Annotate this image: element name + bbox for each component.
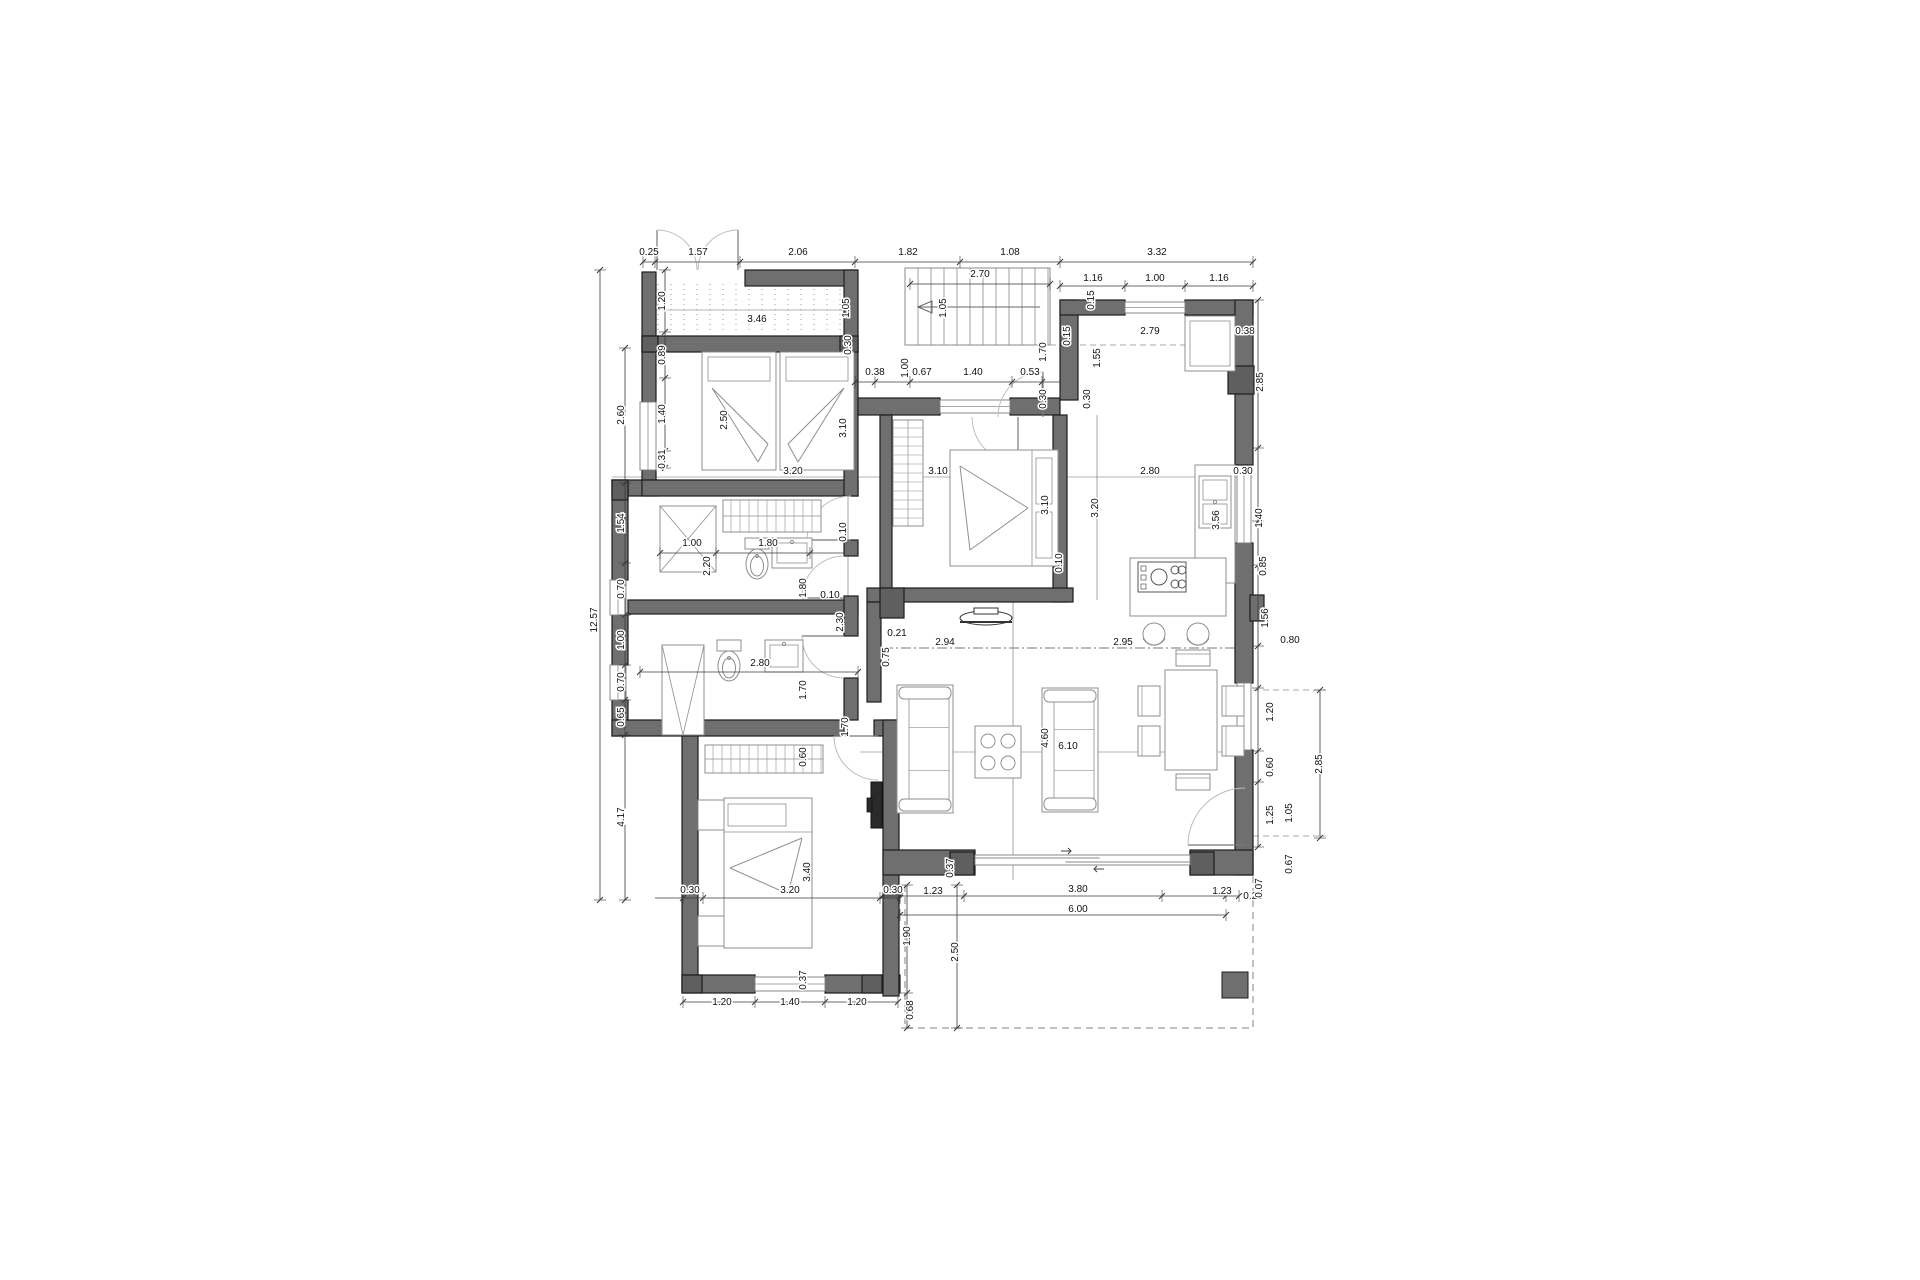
dimension-label: 0.15	[1062, 326, 1073, 346]
dimension-label: 3.20	[1090, 498, 1101, 518]
wall-post	[880, 588, 904, 618]
dimension-label: 1.08	[1000, 247, 1020, 258]
dimension-label: 0.37	[945, 858, 956, 878]
chair	[1176, 774, 1210, 790]
dimension-label: 2.50	[950, 942, 961, 962]
dimension-label: 3.20	[780, 885, 800, 896]
boiler	[1185, 316, 1235, 371]
dimension-label: 0.30	[843, 335, 854, 355]
dimension-label: 6.00	[1068, 904, 1088, 915]
toilet	[746, 549, 768, 579]
chair	[1222, 726, 1244, 756]
sofa	[897, 685, 953, 813]
dimension-label: 0.07	[1254, 878, 1265, 898]
dimension-label: 2.94	[935, 637, 955, 648]
dimension-label: 4.17	[616, 807, 627, 827]
dimension-label: 0.31	[657, 449, 668, 469]
tv-mount	[867, 798, 872, 812]
dimension-label: 0.21	[887, 628, 907, 639]
wall	[1010, 398, 1060, 415]
nightstand	[698, 800, 724, 830]
dimension-label: 1.80	[798, 578, 809, 598]
dimension-label: 0.30	[1082, 389, 1093, 409]
dimension-label: 0.70	[616, 672, 627, 692]
wall	[867, 602, 881, 702]
dimension-label: 3.10	[928, 466, 948, 477]
nightstand	[698, 916, 724, 946]
dimension-label: 1.40	[1254, 508, 1265, 528]
dimension-label: 1.82	[898, 247, 918, 258]
wall-post	[1190, 852, 1214, 875]
shower	[662, 645, 704, 735]
dimension-label: 1.70	[1038, 342, 1049, 362]
stool	[1187, 623, 1209, 645]
dimension-label: 1.00	[900, 358, 911, 378]
dimension-label: 1.40	[963, 367, 983, 378]
dimension-label: 0.10	[820, 590, 840, 601]
wall	[745, 270, 857, 286]
toilet-tank	[717, 640, 741, 651]
wall-post	[682, 975, 702, 993]
dimension-label: 0.75	[881, 647, 892, 667]
chair	[1176, 650, 1210, 666]
dimension-label: 2.85	[1255, 372, 1266, 392]
toilet	[718, 651, 740, 681]
wall	[642, 352, 656, 402]
wall	[642, 480, 858, 496]
wall	[682, 736, 698, 992]
dimension-label: 1.20	[847, 997, 867, 1008]
dimension-label: 1.05	[841, 298, 852, 318]
dimension-label: 3.32	[1147, 247, 1167, 258]
dimension-label: 1.00	[1145, 273, 1165, 284]
dimension-label: 0.30	[1038, 389, 1049, 409]
dimension-label: 1.05	[938, 298, 949, 318]
cooktop	[1138, 562, 1186, 592]
dimension-label: 0.30	[883, 885, 903, 896]
chair	[1138, 686, 1160, 716]
coffee-table	[975, 726, 1021, 778]
dimension-label: 0.65	[616, 707, 627, 727]
dimension-label: 2.30	[835, 612, 846, 632]
dimension-label: 1.54	[616, 513, 627, 533]
tv	[871, 782, 882, 828]
dimension-label: 0.38	[865, 367, 885, 378]
dimension-label: 0.85	[1258, 556, 1269, 576]
dimension-label: 0.60	[798, 747, 809, 767]
dimension-label: 1.55	[1092, 348, 1103, 368]
wall	[628, 600, 858, 614]
dimension-label: 3.56	[1211, 510, 1222, 530]
dimension-label: 2.60	[616, 405, 627, 425]
dimension-label: 1.05	[1284, 803, 1295, 823]
sofa-arm	[899, 687, 951, 699]
dimension-label: 3.46	[747, 314, 767, 325]
dimension-label: 1.90	[902, 926, 913, 946]
dimension-label: 6.10	[1058, 741, 1078, 752]
dimension-label: 2.80	[1140, 466, 1160, 477]
wall	[642, 336, 858, 352]
dimension-label: 0.70	[616, 579, 627, 599]
dimension-label: 1.20	[657, 291, 668, 311]
dimension-label: 1.16	[1209, 273, 1229, 284]
dimension-label: 1.20	[712, 997, 732, 1008]
dimension-label: 1.40	[780, 997, 800, 1008]
wall	[844, 596, 858, 636]
dimension-label: 1.20	[1265, 702, 1276, 722]
dimension-label: 1.16	[1083, 273, 1103, 284]
dimension-label: 1.40	[657, 404, 668, 424]
wall-post	[862, 975, 882, 993]
canvas	[0, 0, 1920, 1280]
dimension-label: 2.70	[970, 269, 990, 280]
dimension-label: 1.70	[798, 680, 809, 700]
tv-screen	[974, 608, 998, 614]
dimension-label: 2.95	[1113, 637, 1133, 648]
dimension-label: 2.85	[1314, 754, 1325, 774]
dimension-label: 3.10	[838, 418, 849, 438]
dimension-label: 0.53	[1020, 367, 1040, 378]
double-bed	[724, 798, 812, 948]
dimension-label: 0.30	[1233, 466, 1253, 477]
dimension-label: 1.25	[1265, 805, 1276, 825]
wall	[844, 678, 858, 720]
dimension-label: 3.40	[802, 862, 813, 882]
sofa-arm	[899, 799, 951, 811]
sofa-arm	[1044, 690, 1096, 702]
dimension-label: 0.10	[838, 522, 849, 542]
dimension-label: 0.25	[639, 247, 659, 258]
dimension-label: 4.60	[1040, 728, 1051, 748]
dimension-label: 1.23	[923, 886, 943, 897]
dimension-label: 0.15	[1086, 290, 1097, 310]
dimension-label: 3.80	[1068, 884, 1088, 895]
sofa-arm	[1044, 798, 1096, 810]
stool	[1143, 623, 1165, 645]
dimension-label: 12.57	[589, 607, 600, 632]
dimension-label: 0.80	[1280, 635, 1300, 646]
dimension-label: 3.20	[783, 466, 803, 477]
dimension-label: 2.79	[1140, 326, 1160, 337]
dimension-label: 0.67	[1284, 854, 1295, 874]
dimension-label: 1.00	[616, 630, 627, 650]
dimension-label: 0.37	[798, 970, 809, 990]
sliding-door	[975, 855, 1190, 865]
dimension-label: 0.68	[905, 1000, 916, 1020]
dimension-label: 1.57	[688, 247, 708, 258]
wall	[880, 415, 892, 602]
dimension-label: 0.30	[680, 885, 700, 896]
chair	[1138, 726, 1160, 756]
single-bed	[780, 352, 854, 470]
dimension-label: 2.80	[750, 658, 770, 669]
dimension-label: 1.00	[682, 538, 702, 549]
dimension-label: 0.89	[657, 345, 668, 365]
wall	[612, 720, 844, 736]
dining-table	[1165, 670, 1217, 770]
dimension-label: 1.56	[1260, 608, 1271, 628]
dimension-label: 1.23	[1212, 886, 1232, 897]
dimension-label: 1.80	[758, 538, 778, 549]
dimension-label: 2.20	[702, 556, 713, 576]
dimension-label: 1.70	[840, 717, 851, 737]
wall	[858, 398, 940, 415]
dimension-label: 0.10	[1054, 553, 1065, 573]
single-bed	[702, 352, 776, 470]
floor-plan-page: 0.251.572.061.821.083.322.701.161.001.16…	[0, 0, 1920, 1280]
terrace-column	[1222, 972, 1248, 998]
dimension-label: 0.38	[1235, 326, 1255, 337]
floor-plan-drawing: 0.251.572.061.821.083.322.701.161.001.16…	[0, 0, 1920, 1280]
dimension-label: 3.10	[1040, 495, 1051, 515]
wall-post	[642, 336, 658, 352]
chair	[1222, 686, 1244, 716]
dimension-label: 2.06	[788, 247, 808, 258]
dimension-label: 2.50	[719, 410, 730, 430]
dimension-label: 0.60	[1265, 757, 1276, 777]
dimension-label: 0.67	[912, 367, 932, 378]
